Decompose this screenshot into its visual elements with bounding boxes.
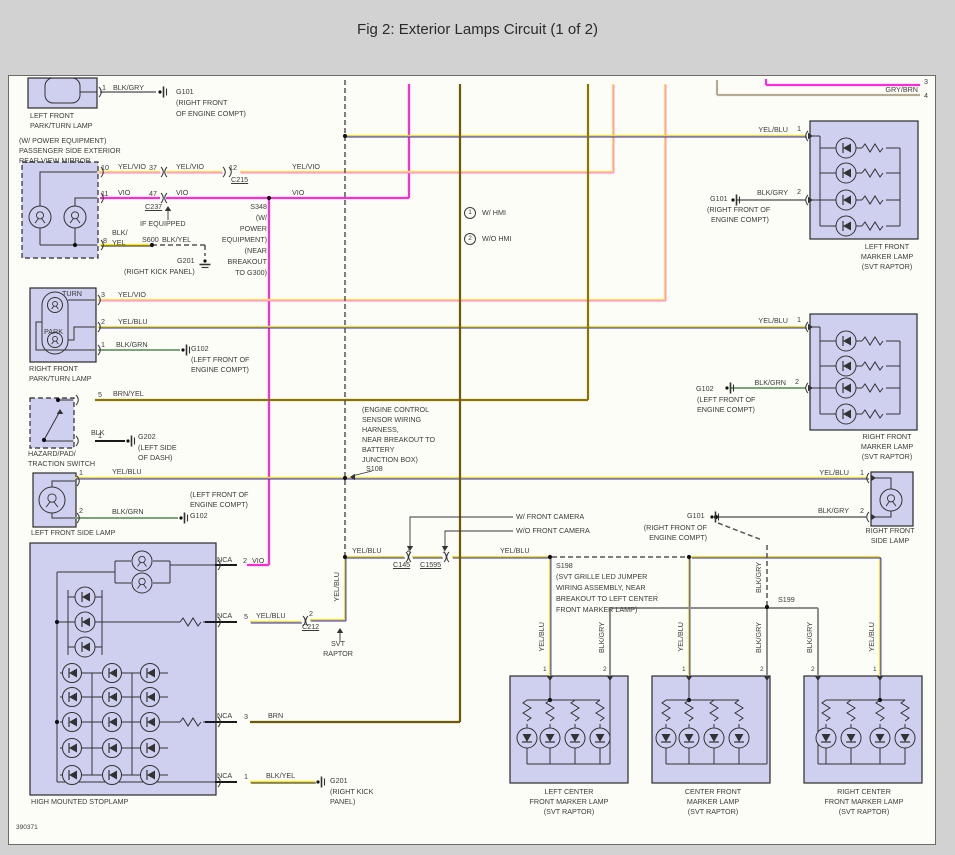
wiring-diagram-page: Fig 2: Exterior Lamps Circuit (1 of 2) 1… [0, 0, 955, 855]
led-icon [870, 728, 890, 748]
led-icon [63, 766, 82, 785]
led-icon [103, 664, 122, 683]
led-icon [75, 587, 95, 607]
led-icon [63, 688, 82, 707]
junction-dot [765, 605, 769, 609]
junction-dot [687, 555, 691, 559]
led-icon [836, 356, 856, 376]
led-icon [103, 739, 122, 758]
high-mounted-stoplamp-box [30, 543, 216, 795]
led-icon [75, 612, 95, 632]
led-icon [103, 713, 122, 732]
left-front-marker-lamp-box [810, 121, 918, 239]
led-icon [895, 728, 915, 748]
junction-dot [55, 720, 59, 724]
junction-dot [42, 438, 46, 442]
led-icon [565, 728, 585, 748]
led-icon [836, 378, 856, 398]
diagram-artwork [0, 0, 955, 855]
led-icon [836, 190, 856, 210]
led-icon [75, 637, 95, 657]
led-icon [103, 688, 122, 707]
junction-dot [73, 243, 77, 247]
bulb-icon [132, 573, 152, 593]
led-icon [63, 739, 82, 758]
junction-dot [343, 134, 347, 138]
led-icon [836, 216, 856, 236]
led-icon [103, 766, 122, 785]
led-icon [540, 728, 560, 748]
led-icon [656, 728, 676, 748]
bulb-icon [64, 206, 86, 228]
bulb-icon [48, 333, 63, 348]
figure-number: 390371 [16, 824, 38, 831]
led-icon [141, 766, 160, 785]
led-icon [836, 163, 856, 183]
junction-dot [267, 196, 271, 200]
junction-dot [150, 243, 154, 247]
led-icon [704, 728, 724, 748]
led-icon [729, 728, 749, 748]
led-icon [590, 728, 610, 748]
bulb-icon [880, 489, 902, 511]
led-icon [141, 664, 160, 683]
bulb-icon [39, 487, 65, 513]
led-icon [63, 664, 82, 683]
led-icon [841, 728, 861, 748]
led-icon [679, 728, 699, 748]
led-icon [836, 138, 856, 158]
led-icon [141, 739, 160, 758]
led-icon [517, 728, 537, 748]
junction-dot [343, 555, 347, 559]
led-icon [63, 713, 82, 732]
led-icon [836, 331, 856, 351]
junction-dot [548, 555, 552, 559]
led-icon [141, 713, 160, 732]
led-icon [836, 404, 856, 424]
bulb-icon [132, 551, 152, 571]
bulb-icon [29, 206, 51, 228]
junction-dot [56, 398, 60, 402]
led-icon [816, 728, 836, 748]
bulb-icon [48, 298, 63, 313]
junction-dot [55, 620, 59, 624]
junction-dot [343, 476, 347, 480]
led-icon [141, 688, 160, 707]
